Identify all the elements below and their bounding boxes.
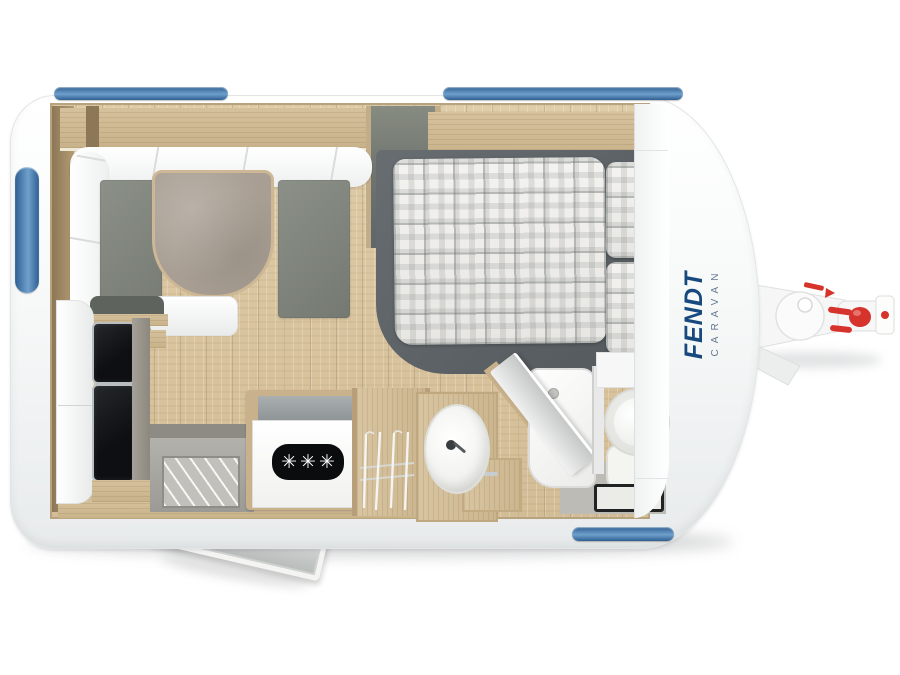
washbasin (424, 404, 490, 494)
kitchen-side-panel (132, 318, 150, 496)
caravan-floorplan: ✳ ✳ ✳ FENDT CARAVAN (0, 0, 900, 675)
brand-logo-inner: FENDT CARAVAN (680, 268, 721, 363)
kitchen-sink (162, 456, 240, 508)
fridge-door-upper (92, 322, 136, 384)
window-strip-door (572, 527, 674, 541)
brand-logo: FENDT CARAVAN (635, 273, 765, 357)
stove-burner-icon: ✳ (281, 453, 297, 472)
kitchen-tower-cabinet (56, 300, 94, 504)
wall-seam (634, 478, 668, 479)
hitch-red-arrow (825, 288, 835, 298)
wall-seam (634, 150, 668, 151)
fridge-door-lower (92, 384, 136, 482)
hitch-red-handle (849, 307, 871, 327)
hitch-red-handle-highlight (853, 310, 861, 316)
stove-glass-panel: ✳ ✳ ✳ (272, 444, 344, 480)
dinette-table (152, 170, 274, 298)
brand-subtitle: CARAVAN (710, 268, 721, 363)
clothes-hangers-icon (358, 430, 416, 512)
stove-burner-icon: ✳ (319, 453, 335, 472)
window-strip-top-right (443, 87, 683, 100)
hitch-joint-hole (798, 298, 812, 312)
hitch-red-pin (804, 282, 825, 291)
brand-name: FENDT (680, 271, 709, 359)
overhead-cabinet (60, 108, 370, 151)
stove-burner-icon: ✳ (300, 453, 316, 472)
cabinet-seam (58, 405, 92, 406)
stove-worktop (258, 396, 352, 420)
hitch-red-dot (881, 311, 889, 319)
window-strip-left (15, 167, 39, 293)
bed-duvet (393, 157, 607, 345)
kitchen-worktop-end (90, 296, 164, 316)
appliance-base (92, 480, 150, 502)
dinette-seat-right (278, 180, 350, 318)
window-strip-top-left (54, 87, 228, 100)
